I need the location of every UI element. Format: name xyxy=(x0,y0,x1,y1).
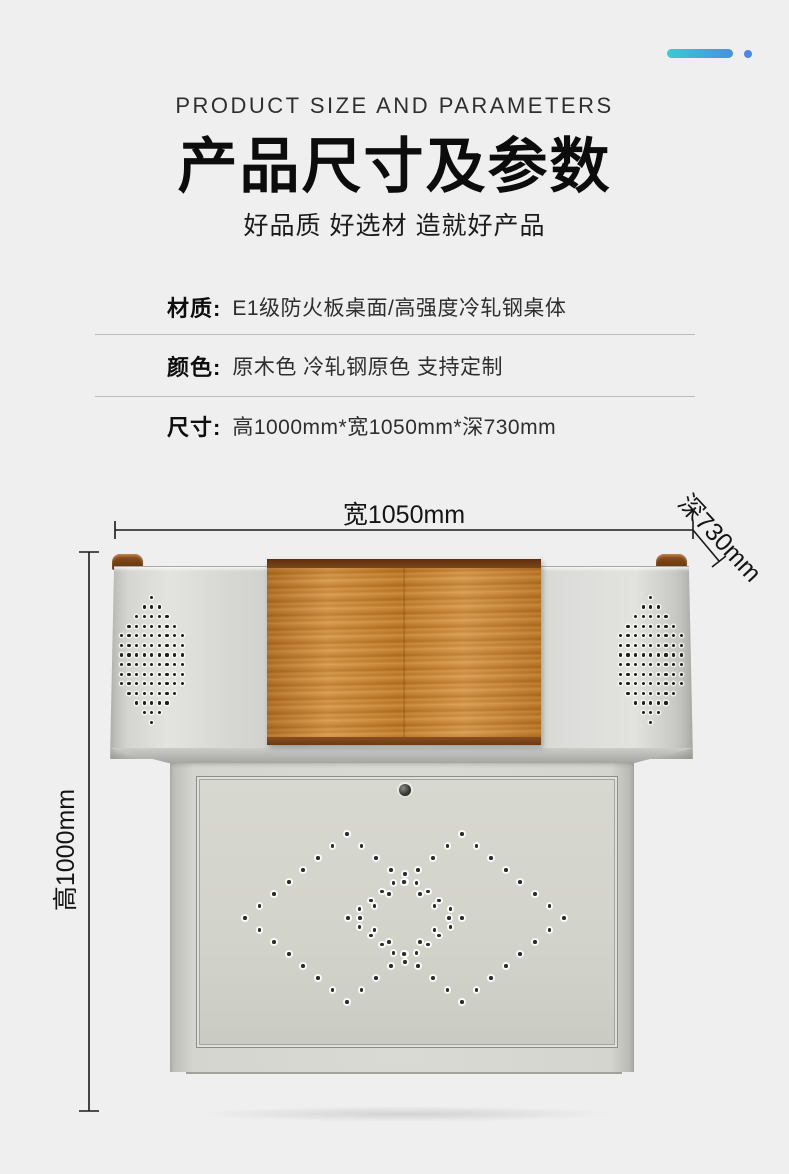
height-dimension-label: 高1000mm xyxy=(46,780,82,920)
product-detail-page: PRODUCT SIZE AND PARAMETERS 产品尺寸及参数 好品质 … xyxy=(0,0,789,1174)
dimension-lines xyxy=(0,0,789,1174)
width-dimension-label: 宽1050mm xyxy=(115,495,693,531)
